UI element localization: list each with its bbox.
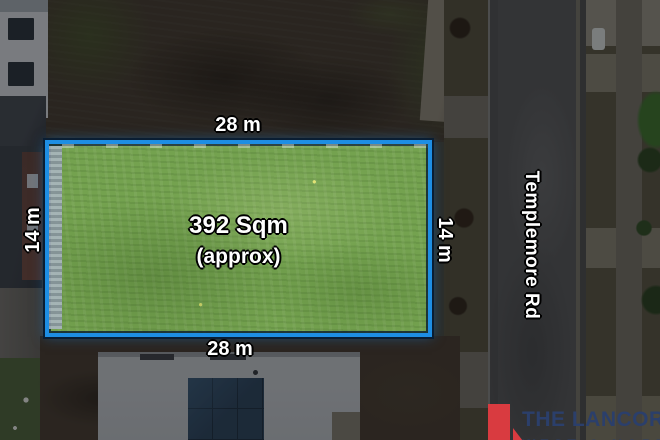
brand-text-block: THE LANCORE WEST & NORTH [522,408,660,440]
plot-area-label: 392 Sqm (approx) [189,212,288,269]
fence-line-left [49,146,62,329]
area-approx: (approx) [189,245,288,269]
road-name-label: Templemore Rd [518,160,544,330]
dimension-label-bottom: 28 m [180,336,280,362]
dimension-label-left: 14 m [18,203,48,257]
dimension-label-right: 14 m [430,213,460,267]
land-plot-highlight: 392 Sqm (approx) [45,140,432,337]
brand-name: THE LANCORE [522,408,660,432]
fence-line-top [62,144,428,148]
area-value: 392 Sqm [189,212,288,240]
brand-tagline: WEST & NORTH [522,436,660,440]
brand-logo: THE LANCORE WEST & NORTH [488,404,660,440]
dimension-label-top: 28 m [188,112,288,138]
property-aerial-photo: 392 Sqm (approx) 28 m 28 m 14 m 14 m Tem… [0,0,660,440]
logo-bar-icon [488,404,510,440]
